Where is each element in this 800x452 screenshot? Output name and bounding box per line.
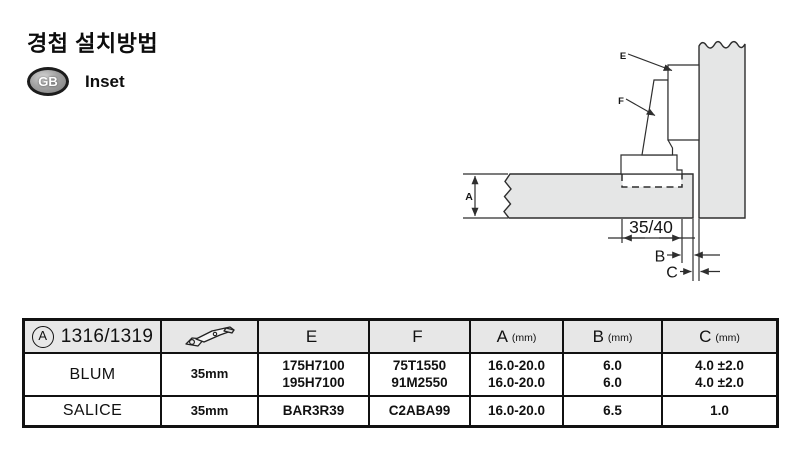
- spec-table: A 1316/1319 E F A (mm) B (mm) C (mm) BLU…: [22, 318, 779, 428]
- cell-a-blum: 16.0-20.0 16.0-20.0: [471, 354, 564, 397]
- cell-brand-blum: BLUM: [25, 354, 162, 397]
- ref-code: 1316/1319: [61, 325, 154, 349]
- cell-c-salice: 1.0: [663, 397, 776, 425]
- column-header-c: C (mm): [663, 321, 776, 354]
- cell-cup-salice: 35mm: [162, 397, 259, 425]
- label-a: A: [465, 191, 473, 203]
- cell-b-salice: 6.5: [564, 397, 663, 425]
- cell-c-blum: 4.0 ±2.0 4.0 ±2.0: [663, 354, 776, 397]
- mounting-plate: [668, 65, 699, 140]
- circled-a-icon: A: [32, 326, 54, 348]
- cell-b-blum: 6.0 6.0: [564, 354, 663, 397]
- column-header-f: F: [370, 321, 471, 354]
- column-header-e: E: [259, 321, 370, 354]
- column-header-b: B (mm): [564, 321, 663, 354]
- leader-e: [628, 54, 672, 71]
- cell-f-blum: 75T1550 91M2550: [370, 354, 471, 397]
- cell-e-salice: BAR3R39: [259, 397, 370, 425]
- column-header-a: A (mm): [471, 321, 564, 354]
- dim-35-40-text: 35/40: [629, 217, 673, 237]
- catalog-page: { "header": { "title": "경첩 설치방법", "badge…: [0, 0, 800, 452]
- table-ref-header: A 1316/1319: [25, 321, 162, 354]
- label-c: C: [666, 265, 678, 282]
- hinge-diagram: A 35/40 B C E F: [0, 0, 800, 310]
- hinge-cup-area: [623, 175, 682, 187]
- label-e: E: [620, 51, 626, 62]
- cell-f-salice: C2ABA99: [370, 397, 471, 425]
- hinge-flange: [621, 155, 682, 174]
- cell-cup-blum: 35mm: [162, 354, 259, 397]
- cell-a-salice: 16.0-20.0: [471, 397, 564, 425]
- label-f: F: [618, 96, 624, 107]
- table-hinge-icon-header: [162, 321, 259, 354]
- hinge-icon: [182, 324, 238, 350]
- cell-e-blum: 175H7100 195H7100: [259, 354, 370, 397]
- cell-brand-salice: SALICE: [25, 397, 162, 425]
- cabinet-panel: [699, 42, 745, 218]
- label-b: B: [655, 249, 666, 266]
